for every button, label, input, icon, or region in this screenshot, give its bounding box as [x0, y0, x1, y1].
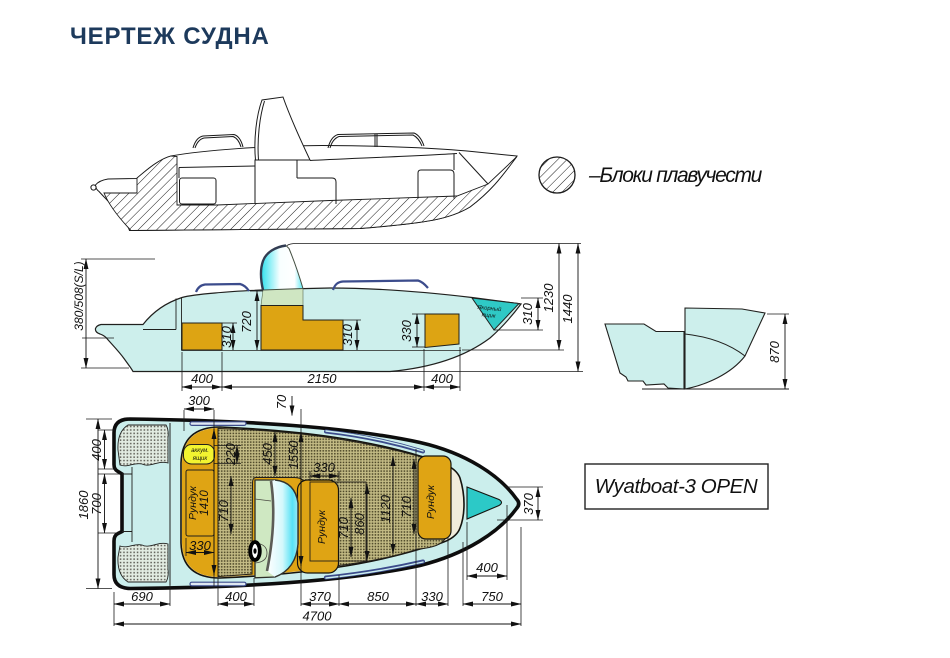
svg-text:400: 400 — [431, 371, 453, 386]
svg-text:710: 710 — [399, 495, 414, 517]
svg-text:710: 710 — [336, 516, 351, 538]
svg-text:Wyatboat-3 OPEN: Wyatboat-3 OPEN — [595, 475, 758, 498]
svg-text:4700: 4700 — [303, 609, 333, 624]
svg-text:1440: 1440 — [560, 294, 575, 324]
svg-text:330: 330 — [189, 538, 211, 553]
svg-text:1550: 1550 — [286, 440, 301, 470]
svg-text:450: 450 — [260, 442, 275, 464]
svg-text:860: 860 — [352, 512, 367, 534]
svg-text:870: 870 — [767, 340, 782, 362]
svg-text:310: 310 — [219, 325, 234, 347]
svg-text:70: 70 — [274, 394, 289, 409]
svg-text:300: 300 — [188, 393, 210, 408]
svg-text:380/508(S/L): 380/508(S/L) — [72, 261, 86, 330]
svg-text:310: 310 — [340, 323, 355, 345]
svg-text:–Блоки плавучести: –Блоки плавучести — [588, 164, 763, 187]
svg-text:ящик: ящик — [192, 456, 209, 462]
svg-text:370: 370 — [309, 589, 331, 604]
svg-text:370: 370 — [521, 492, 536, 514]
svg-text:330: 330 — [313, 460, 335, 475]
svg-text:330: 330 — [421, 589, 443, 604]
svg-text:750: 750 — [481, 589, 503, 604]
svg-text:720: 720 — [239, 310, 254, 332]
svg-text:310: 310 — [520, 302, 535, 324]
svg-text:1120: 1120 — [378, 494, 393, 523]
svg-text:Рундук: Рундук — [316, 509, 328, 544]
svg-text:Рундук: Рундук — [425, 484, 437, 519]
svg-text:2150: 2150 — [307, 371, 338, 386]
svg-text:1230: 1230 — [541, 283, 556, 313]
svg-text:690: 690 — [131, 589, 153, 604]
svg-text:710: 710 — [216, 499, 231, 521]
svg-text:400: 400 — [476, 560, 498, 575]
svg-text:аккум.: аккум. — [191, 448, 209, 454]
svg-text:850: 850 — [367, 589, 389, 604]
svg-text:1410: 1410 — [199, 490, 211, 516]
svg-text:330: 330 — [399, 319, 414, 341]
svg-text:400: 400 — [89, 438, 104, 460]
svg-text:400: 400 — [225, 589, 247, 604]
svg-text:700: 700 — [89, 492, 104, 514]
svg-text:Рундук: Рундук — [187, 485, 199, 520]
svg-text:220: 220 — [223, 442, 238, 465]
svg-text:400: 400 — [191, 371, 213, 386]
